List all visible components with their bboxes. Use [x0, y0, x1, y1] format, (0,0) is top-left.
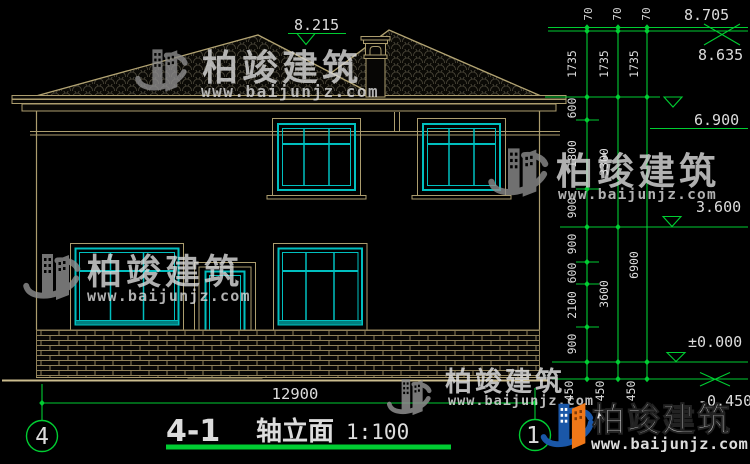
- drawing-canvas: 8.215 8.705 8.635 6.900 3.600 ±0.000 -0.…: [0, 0, 750, 464]
- brand-url: www.baijunjz.com: [591, 435, 748, 453]
- elevation-roof-minor: 8.215: [294, 16, 339, 34]
- dim-grade-offset: 450: [593, 381, 607, 402]
- title-underline: [166, 445, 451, 450]
- logo-tower-blue: [558, 404, 569, 444]
- dim-segment: 900: [565, 234, 579, 255]
- overall-width-dim: 12900: [272, 385, 319, 403]
- dim-segment: 600: [565, 263, 579, 284]
- watermark-url: www.baijunjz.com: [558, 187, 717, 203]
- elevation-eave: 8.635: [698, 46, 743, 64]
- dimension-labels: 70 70 70 1735 1735 1735 600 1800 900 900…: [562, 7, 653, 401]
- grid-bubble-4: 4: [35, 424, 49, 450]
- dim-top-offset: 70: [640, 7, 653, 20]
- dim-grade-offset: 450: [624, 381, 638, 402]
- drawing-title: 轴立面: [256, 416, 334, 447]
- watermark-url: www.baijunjz.com: [87, 287, 251, 305]
- dim-top-offset: 70: [611, 7, 624, 20]
- title-block: 4-1 轴立面 1:100: [166, 414, 451, 450]
- drawing-number: 4-1: [166, 414, 220, 449]
- dim-top-offset: 70: [582, 7, 595, 20]
- window-1f-right: [274, 244, 368, 331]
- window-2f-left: [267, 119, 366, 200]
- logo-tower-orange: [572, 403, 585, 449]
- dim-segment: 6900: [627, 251, 641, 279]
- grid-bubble-1: 1: [526, 423, 540, 449]
- elevation-roof-ridge: 8.705: [684, 6, 729, 24]
- dim-segment: 3600: [597, 280, 611, 308]
- elevation-level2: 6.900: [694, 111, 739, 129]
- watermark-left: 柏竣建筑 www.baijunjz.com: [21, 252, 251, 305]
- dim-ridge-run: 1735: [627, 50, 641, 78]
- drawing-scale: 1:100: [346, 420, 409, 444]
- cad-elevation-drawing: 8.215 8.705 8.635 6.900 3.600 ±0.000 -0.…: [0, 0, 750, 464]
- dim-ridge-run: 1735: [565, 50, 579, 78]
- dim-segment: 600: [565, 98, 579, 119]
- elevation-ground: ±0.000: [688, 333, 742, 351]
- dim-segment: 2100: [565, 291, 579, 319]
- watermark-url: www.baijunjz.com: [201, 82, 379, 101]
- watermark-right: 柏竣建筑 www.baijunjz.com: [486, 148, 720, 203]
- brand-name: 柏竣建筑: [592, 400, 732, 439]
- dim-ridge-run: 1735: [597, 50, 611, 78]
- watermark-url: www.baijunjz.com: [448, 393, 594, 409]
- dim-segment: 900: [565, 334, 579, 355]
